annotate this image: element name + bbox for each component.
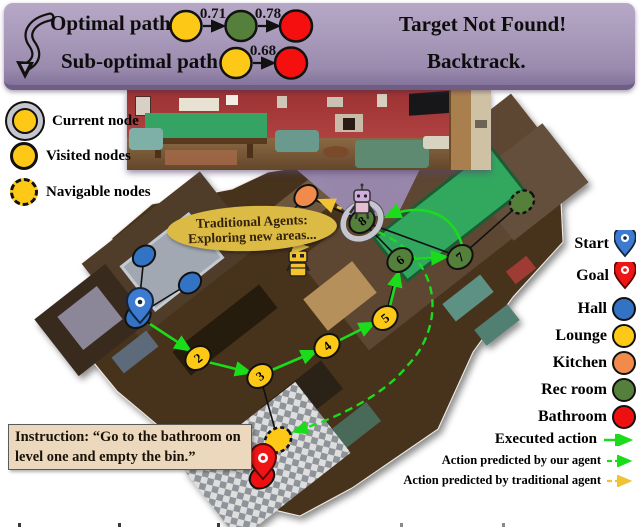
suboptimal-node-start: [221, 48, 252, 78]
legend-lounge: Lounge: [555, 324, 636, 348]
suboptimal-node-end: [275, 48, 307, 79]
node-3: 3: [243, 359, 278, 393]
legend-executed-action: Executed action: [495, 431, 636, 448]
node-5: 5: [368, 301, 403, 335]
legend-kitchen: Kitchen: [553, 351, 636, 375]
node-7: 7: [443, 240, 478, 274]
kitchen-icon: [612, 351, 636, 375]
optimal-path-label: Optimal path:: [50, 11, 178, 36]
bathroom-icon: [612, 405, 636, 429]
backtrack-label: Backtrack.: [427, 49, 526, 74]
legend-rec-room: Rec room: [541, 378, 636, 402]
legend-current-node: Current node: [6, 102, 139, 140]
traditional-agent-arrow-icon: [606, 475, 636, 487]
instruction-text: Instruction: “Go to the bathroom on leve…: [15, 429, 241, 465]
optimal-path-graph: 0.71 0.78: [164, 6, 316, 46]
suboptimal-path-label: Sub-optimal path:: [61, 49, 225, 74]
legend-goal: Goal: [576, 262, 636, 290]
optimal-node-end: [280, 11, 312, 42]
weight-078: 0.78: [255, 6, 281, 22]
start-pin-icon: [614, 230, 636, 258]
optimal-node-start: [171, 11, 202, 41]
our-agent-arrow-icon: [606, 455, 636, 467]
suboptimal-path-graph: 0.68: [209, 43, 319, 83]
rec-room-icon: [612, 378, 636, 402]
current-node-icon: [12, 108, 38, 134]
hall-node-b: [175, 268, 206, 298]
visited-node-icon: [10, 142, 38, 170]
lounge-icon: [612, 324, 636, 348]
instruction-box: Instruction: “Go to the bathroom on leve…: [8, 424, 252, 470]
executed-action-arrow-icon: [602, 434, 636, 446]
bubble-line-2: Exploring new areas...: [188, 226, 317, 245]
hall-icon: [612, 297, 636, 321]
node-4: 4: [310, 329, 345, 363]
legend-hall: Hall: [578, 297, 636, 321]
target-not-found-label: Target Not Found!: [399, 12, 566, 37]
legend-bathroom: Bathroom: [538, 405, 636, 429]
legend-start: Start: [574, 230, 636, 258]
legend-our-agent-action: Action predicted by our agent: [442, 453, 636, 468]
optimal-node-mid: [226, 11, 257, 41]
legend-traditional-agent-action: Action predicted by traditional agent: [403, 473, 636, 488]
top-banner: Optimal path: 0.71 0.78 Target Not Found…: [4, 3, 635, 90]
legend-visited-nodes: Visited nodes: [10, 142, 131, 170]
figure: 1 2 3 4 5 6 7: [0, 0, 640, 527]
hall-node-a: [129, 241, 160, 271]
weight-068: 0.68: [250, 43, 276, 59]
weight-071: 0.71: [200, 6, 226, 22]
goal-pin-icon: [614, 262, 636, 290]
legend-navigable-nodes: Navigable nodes: [10, 178, 151, 206]
navigable-node-icon: [10, 178, 38, 206]
